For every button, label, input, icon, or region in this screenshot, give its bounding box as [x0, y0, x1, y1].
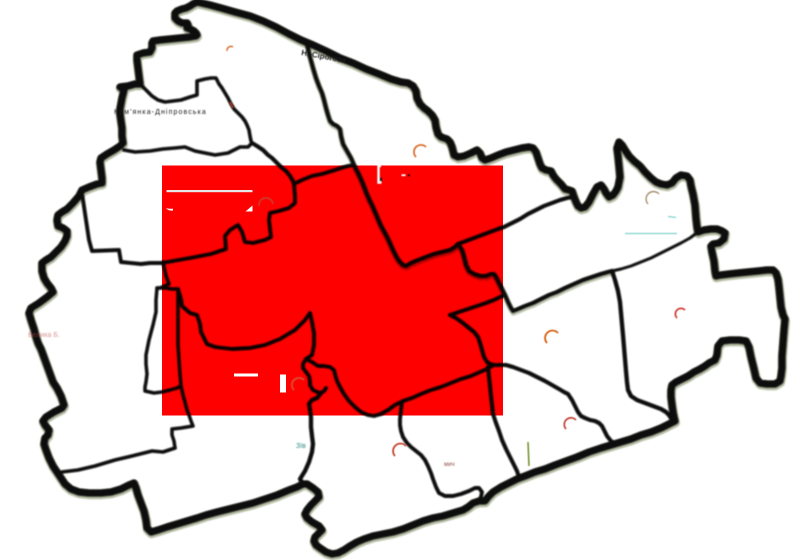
svg-text:Зїв: Зїв: [296, 443, 306, 450]
svg-text:Кам'янка-Дніпровська: Кам'янка-Дніпровська: [114, 108, 207, 116]
svg-text:мич: мич: [444, 462, 455, 468]
svg-text:Велика Б.: Велика Б.: [28, 332, 60, 339]
